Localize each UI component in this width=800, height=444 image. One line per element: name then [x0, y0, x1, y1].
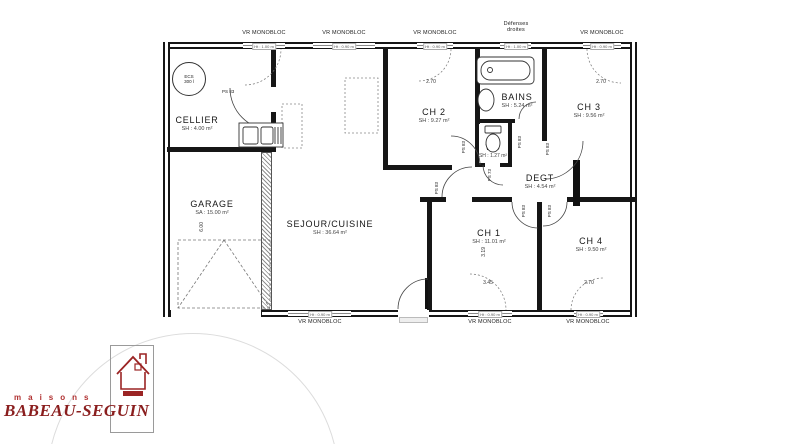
sill-tag-sejour-south: Ht : 0.90 m — [308, 311, 332, 318]
wall-ch1-ch4 — [537, 202, 542, 310]
wall-ch2-left — [383, 49, 388, 170]
appliance-slot-fridge — [345, 78, 378, 133]
door-tag-ch4: PS 83 — [547, 205, 552, 217]
window-arc-ch2 — [419, 49, 451, 81]
wall-corridor-a — [420, 197, 446, 202]
wall-garage-sejour-hatched — [261, 152, 272, 310]
window-swing-arcs — [245, 49, 621, 310]
dim-ch2-width: 2.70 — [425, 79, 437, 85]
door-tag-ch3: PS 83 — [545, 143, 550, 155]
room-ch3-area: SH : 9.56 m² — [574, 113, 605, 119]
house-icon — [114, 351, 152, 399]
toilet-tank — [485, 126, 501, 133]
entrance-door-opening — [398, 310, 429, 317]
bathroom-sink — [478, 89, 494, 111]
wall-cellier-right-upper — [271, 49, 276, 87]
room-sejour: SEJOUR/CUISINE SH : 36.64 m² — [287, 219, 374, 236]
appliance-slot-kitchen — [282, 104, 302, 148]
door-arc-corridor — [442, 167, 472, 197]
door-tag-bains: PS 83 — [517, 136, 522, 148]
appliance-reservations — [282, 78, 378, 148]
floor-plan-canvas: maisons BABEAU-SEGUIN VR MONOBLOC VR MON… — [0, 0, 800, 444]
dim-ch4-width: 2.70 — [583, 280, 595, 286]
room-degt-area: SH : 4.54 m² — [525, 184, 556, 190]
room-sejour-name: SEJOUR/CUISINE — [287, 219, 374, 229]
room-garage-name: GARAGE — [190, 199, 233, 209]
room-garage-area: SA : 15.00 m² — [190, 210, 233, 216]
room-bains-area: SH : 5.24 m² — [501, 103, 532, 109]
room-ch3: CH 3 SH : 9.56 m² — [574, 102, 605, 119]
door-tag-corridor: PS 83 — [434, 182, 439, 194]
room-cellier: CELLIER SH : 4.00 m² — [175, 115, 218, 132]
room-degt: DEGT SH : 4.54 m² — [525, 173, 556, 190]
kitchen-sink-left — [243, 127, 258, 144]
wall-wc-right — [508, 123, 512, 167]
logo-circle — [47, 333, 339, 444]
door-tag-ch1: PS 83 — [521, 205, 526, 217]
room-garage: GARAGE SA : 15.00 m² — [190, 199, 233, 216]
sill-tag-bains: Ht : 1.00 m — [504, 43, 528, 50]
room-degt-name: DEGT — [525, 173, 556, 183]
kitchen-sink-unit — [239, 123, 283, 147]
wall-outer-left — [163, 42, 170, 317]
wall-corridor-b — [472, 197, 512, 202]
window-label-sejour-south: VR MONOBLOC — [280, 320, 360, 326]
sill-tag-ch2: Ht : 0.90 m — [423, 43, 447, 50]
room-bains: BAINS SH : 5.24 m² — [501, 92, 532, 109]
room-cellier-name: CELLIER — [175, 115, 218, 125]
room-ch2-area: SH : 9.27 m² — [419, 118, 450, 124]
door-arc-wc — [483, 165, 503, 185]
sill-tag-ch4: Ht : 0.90 m — [576, 311, 600, 318]
window-label-ch4: VR MONOBLOC — [548, 320, 628, 326]
bathtub-drain — [488, 68, 493, 73]
door-leaf-degt — [573, 160, 580, 206]
wall-outer-right — [630, 42, 637, 317]
door-tag-cellier: PS 83 — [222, 89, 234, 94]
wall-outer-top — [163, 42, 637, 49]
window-label-ch2: VR MONOBLOC — [395, 31, 475, 37]
window-arc-ch3 — [587, 49, 621, 83]
water-heater-label-line2: 300 l — [184, 79, 194, 84]
room-ch1-area: SH : 11.01 m² — [472, 239, 506, 245]
room-ch1-name: CH 1 — [472, 228, 506, 238]
garage-door-symbol — [178, 240, 270, 308]
dim-garage-depth: 6.00 — [200, 222, 205, 232]
entrance-step — [399, 317, 428, 323]
room-wc-name: WC — [479, 143, 507, 152]
room-ch4: CH 4 SH : 9.50 m² — [576, 236, 607, 253]
bathtub-inner — [481, 61, 530, 80]
door-arc-cellier — [230, 88, 272, 130]
room-wc-area: SH : 1.27 m² — [479, 153, 507, 159]
dim-ch3-width: 2.70 — [595, 79, 607, 85]
door-tag-wc: PS 73 — [487, 169, 492, 181]
room-sejour-area: SH : 36.64 m² — [287, 230, 374, 236]
window-label-sejour-bay: VR MONOBLOC — [304, 31, 384, 37]
room-ch2-name: CH 2 — [419, 107, 450, 117]
sill-tag-cellier: Ht : 1.00 m — [252, 43, 276, 50]
room-ch4-name: CH 4 — [576, 236, 607, 246]
logo-brand-text: BABEAU-SEGUIN — [4, 401, 149, 421]
wall-wc-bottom-right — [500, 163, 512, 167]
window-label-ch3: VR MONOBLOC — [562, 31, 642, 37]
wall-cellier-bottom — [167, 147, 274, 152]
sill-tag-ch1: Ht : 0.90 m — [478, 311, 502, 318]
wall-ch2-bottom — [386, 165, 452, 170]
room-ch2: CH 2 SH : 9.27 m² — [419, 107, 450, 124]
door-tag-ch2: PS 83 — [461, 141, 466, 153]
dim-ch1-width: 3.45 — [482, 280, 494, 286]
door-arc-entrance — [398, 279, 428, 309]
entrance-door-leaf — [425, 278, 428, 309]
room-bains-name: BAINS — [501, 92, 532, 102]
dim-ch1-depth: 3.19 — [482, 247, 487, 257]
window-label-ch1: VR MONOBLOC — [450, 320, 530, 326]
wall-wc-bottom-left — [475, 163, 485, 167]
room-ch4-area: SH : 9.50 m² — [576, 247, 607, 253]
sill-tag-ch3: Ht : 0.90 m — [590, 43, 614, 50]
room-ch1: CH 1 SH : 11.01 m² — [472, 228, 506, 245]
room-cellier-area: SH : 4.00 m² — [175, 126, 218, 132]
sill-tag-sejour-bay: Ht : 0.90 m — [332, 43, 356, 50]
bathtub-outline — [477, 57, 534, 84]
window-label-bains-line2: droites — [476, 28, 556, 34]
garage-door-opening — [170, 310, 262, 317]
wall-ch2-bains — [475, 49, 480, 124]
room-wc: WC SH : 1.27 m² — [479, 143, 507, 159]
wall-ch3-left — [542, 49, 547, 141]
wall-cellier-right-lower — [271, 112, 276, 152]
room-ch3-name: CH 3 — [574, 102, 605, 112]
water-heater-symbol: ECS 300 l — [172, 62, 206, 96]
door-swing-arcs — [230, 88, 583, 309]
window-label-cellier: VR MONOBLOC — [224, 31, 304, 37]
